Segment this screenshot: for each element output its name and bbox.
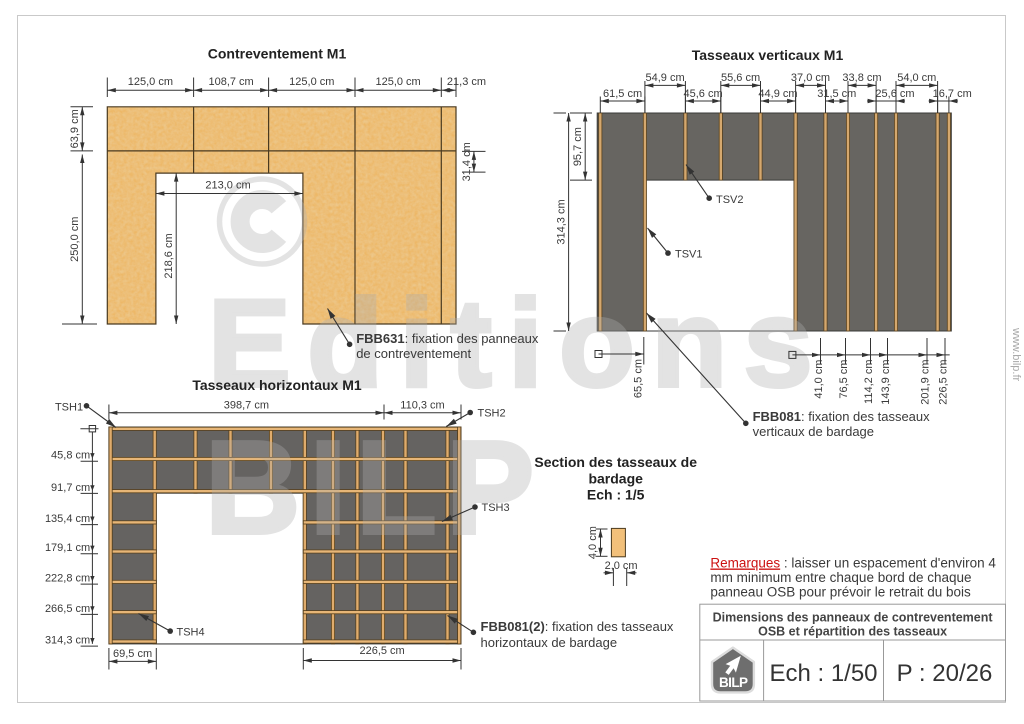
svg-text:314,3 cm: 314,3 cm (45, 635, 90, 647)
svg-text:31,5 cm: 31,5 cm (817, 88, 856, 100)
svg-text:45,8 cm: 45,8 cm (51, 450, 90, 462)
svg-text:OSB et répartition des tasseau: OSB et répartition des tasseaux (758, 625, 947, 639)
svg-text:4,0 cm: 4,0 cm (587, 526, 599, 559)
svg-text:125,0 cm: 125,0 cm (375, 76, 420, 88)
svg-text:143,9 cm: 143,9 cm (880, 360, 892, 405)
svg-text:TSH1: TSH1 (55, 402, 83, 414)
svg-text:de contreventement: de contreventement (356, 346, 471, 361)
svg-text:panneau OSB pour prévoir le re: panneau OSB pour prévoir le retrait du b… (710, 585, 971, 600)
svg-text:FBB081: fixation des tasseaux: FBB081: fixation des tasseaux (753, 409, 931, 424)
svg-text:21,3 cm: 21,3 cm (447, 76, 486, 88)
svg-text:69,5 cm: 69,5 cm (113, 648, 152, 660)
svg-text:108,7 cm: 108,7 cm (208, 76, 253, 88)
svg-text:TSH3: TSH3 (482, 502, 510, 514)
svg-text:16,7 cm: 16,7 cm (933, 88, 972, 100)
svg-text:Remarques : laisser un espacem: Remarques : laisser un espacement d'envi… (710, 556, 996, 571)
svg-text:TSH2: TSH2 (478, 408, 506, 420)
svg-text:61,5 cm: 61,5 cm (603, 88, 642, 100)
svg-text:222,8 cm: 222,8 cm (45, 573, 90, 585)
svg-text:114,2 cm: 114,2 cm (863, 360, 875, 404)
svg-text:201,9 cm: 201,9 cm (920, 360, 932, 405)
svg-text:65,5 cm: 65,5 cm (632, 359, 644, 398)
svg-text:mm minimum entre chaque bord d: mm minimum entre chaque bord de chaque (710, 570, 971, 585)
svg-text:P : 20/26: P : 20/26 (897, 660, 993, 687)
svg-text:Section des tasseaux de: Section des tasseaux de (534, 454, 697, 470)
svg-text:Dimensions des panneaux de con: Dimensions des panneaux de contreventeme… (713, 611, 994, 625)
svg-text:25,6 cm: 25,6 cm (875, 88, 914, 100)
svg-text:213,0 cm: 213,0 cm (205, 180, 250, 192)
svg-text:91,7 cm: 91,7 cm (51, 482, 90, 494)
svg-text:37,0 cm: 37,0 cm (791, 72, 830, 84)
svg-text:314,3 cm: 314,3 cm (556, 199, 568, 244)
svg-text:verticaux de bardage: verticaux de bardage (753, 424, 874, 439)
svg-text:95,7 cm: 95,7 cm (572, 127, 584, 166)
svg-text:Ech : 1/50: Ech : 1/50 (769, 660, 877, 687)
svg-text:226,5 cm: 226,5 cm (359, 645, 404, 657)
svg-text:31,4 cm: 31,4 cm (461, 142, 473, 181)
svg-text:FBB631: fixation des panneaux: FBB631: fixation des panneaux (356, 331, 539, 346)
svg-text:110,3 cm: 110,3 cm (400, 399, 444, 411)
svg-text:BILP: BILP (205, 414, 544, 561)
svg-text:54,0 cm: 54,0 cm (897, 72, 936, 84)
svg-text:226,5 cm: 226,5 cm (938, 360, 950, 405)
svg-text:179,1 cm: 179,1 cm (45, 542, 90, 554)
svg-text:218,6 cm: 218,6 cm (163, 233, 175, 278)
svg-text:BILP: BILP (719, 675, 748, 690)
svg-text:55,6 cm: 55,6 cm (721, 72, 760, 84)
svg-text:TSV1: TSV1 (675, 249, 703, 261)
svg-text:76,5 cm: 76,5 cm (838, 360, 850, 399)
svg-text:63,9 cm: 63,9 cm (69, 109, 81, 148)
svg-text:FBB081(2): fixation des tassea: FBB081(2): fixation des tasseaux (481, 619, 674, 634)
svg-text:2,0 cm: 2,0 cm (605, 560, 638, 572)
svg-text:266,5 cm: 266,5 cm (45, 603, 90, 615)
svg-text:33,8 cm: 33,8 cm (842, 72, 881, 84)
svg-text:41,0 cm: 41,0 cm (813, 360, 825, 399)
svg-text:Tasseaux horizontaux M1: Tasseaux horizontaux M1 (192, 377, 362, 393)
svg-text:horizontaux de bardage: horizontaux de bardage (481, 635, 618, 650)
svg-text:Tasseaux verticaux M1: Tasseaux verticaux M1 (692, 47, 844, 63)
svg-text:www.bilp.fr: www.bilp.fr (1010, 327, 1022, 382)
svg-text:45,6 cm: 45,6 cm (684, 88, 723, 100)
svg-text:Contreventement M1: Contreventement M1 (208, 46, 347, 62)
svg-text:135,4 cm: 135,4 cm (45, 513, 90, 525)
svg-text:TSH4: TSH4 (177, 627, 205, 639)
svg-text:54,9 cm: 54,9 cm (646, 72, 685, 84)
svg-text:125,0 cm: 125,0 cm (128, 76, 173, 88)
svg-text:bardage: bardage (588, 471, 643, 487)
svg-text:125,0 cm: 125,0 cm (289, 76, 334, 88)
svg-text:TSV2: TSV2 (716, 194, 744, 206)
svg-text:Ech : 1/5: Ech : 1/5 (587, 487, 645, 503)
svg-text:250,0 cm: 250,0 cm (69, 217, 81, 262)
svg-text:44,9 cm: 44,9 cm (758, 88, 797, 100)
svg-text:398,7 cm: 398,7 cm (224, 399, 269, 411)
